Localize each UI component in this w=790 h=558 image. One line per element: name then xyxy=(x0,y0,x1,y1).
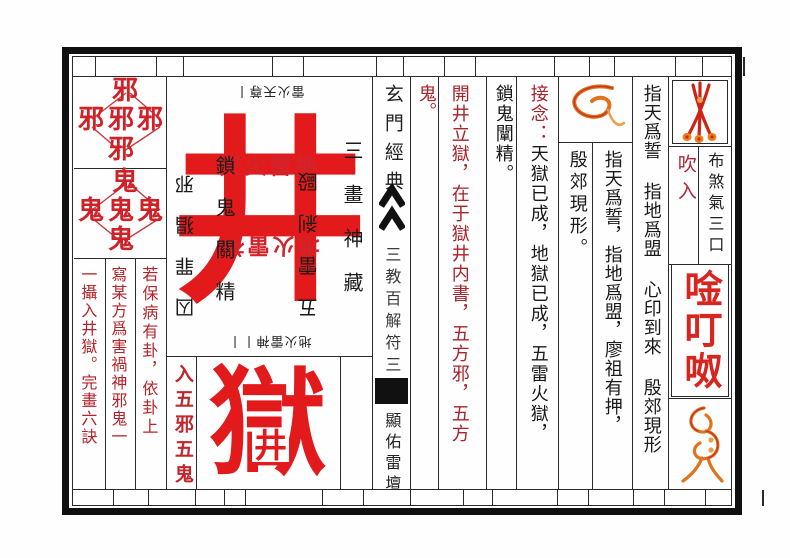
black-bar xyxy=(375,378,408,404)
grid-line xyxy=(558,77,559,489)
left-outer-inverted-col: 囚罪猖邪 xyxy=(176,153,198,317)
grid-line xyxy=(559,142,632,143)
prison-inset-well-char: 井 xyxy=(252,429,289,462)
left-instruction-col-2: 寫某方爲害禍神邪鬼一 xyxy=(108,266,126,486)
grid-line xyxy=(698,146,699,264)
grid-line xyxy=(340,356,341,489)
xie-char: 邪 xyxy=(108,107,134,133)
grid-line xyxy=(668,77,669,489)
double-chevron-up-icon xyxy=(379,184,405,234)
hundred-release-talisman-label: 三教百解符三 xyxy=(382,246,400,378)
gui-char: 鬼 xyxy=(108,227,134,253)
talisman-sheet: 邪 邪 邪 邪 邪 鬼 鬼 鬼 鬼 鬼 一攝入井獄。完畫六訣 寫某方爲害禍神邪鬼… xyxy=(0,0,790,558)
grid-line xyxy=(438,77,439,489)
lock-ghost-gate-col: 鎖鬼關精 xyxy=(212,155,235,323)
top-ruler-strip xyxy=(73,57,731,77)
grid-line xyxy=(372,77,373,489)
swirl-sigil-icon xyxy=(678,402,726,486)
grid-line xyxy=(669,146,732,147)
right-inner-inverted-col: 五雷剎毆 xyxy=(298,150,321,318)
gui-char: 鬼 xyxy=(108,198,134,224)
mantra-text: 唫叮呶 xyxy=(681,269,719,392)
three-strokes-col: 三畫神藏 xyxy=(340,140,363,316)
grid-line xyxy=(135,258,136,489)
needles-sigil-cell xyxy=(672,80,728,144)
crossed-strokes-sigil-icon xyxy=(673,81,727,143)
blow-in-label: 吹入 xyxy=(674,154,696,208)
grid-line xyxy=(592,142,593,489)
loop-sigil-icon xyxy=(562,80,628,138)
gui-char: 鬼 xyxy=(78,198,104,224)
enter-five-evils-label: 入五邪五鬼 xyxy=(171,364,193,489)
prison-char: 獄 xyxy=(197,358,339,488)
grid-line xyxy=(632,77,633,489)
xie-char: 邪 xyxy=(112,78,138,104)
gui-char: 鬼 xyxy=(137,198,163,224)
xie-char: 邪 xyxy=(78,107,104,133)
recite-body: 天獄已成，地獄已成，五雷火獄， xyxy=(528,144,549,444)
yin-jiao-col: 殷郊現形。 xyxy=(566,150,587,260)
grid-line xyxy=(410,77,411,489)
xie-charm-cell: 邪 邪 邪 邪 邪 xyxy=(74,77,166,168)
grid-line xyxy=(105,258,106,489)
overflow-col: 鬼。 xyxy=(415,84,436,120)
lock-ghost-col: 鎖鬼闡精。 xyxy=(492,84,513,184)
mantra-cell: 唫叮呶 xyxy=(671,264,729,397)
oath-long-col: 指天爲誓 指地爲盟 心印到來 殷郊現形 xyxy=(640,84,661,454)
grid-line xyxy=(486,77,487,489)
gui-charm-cell: 鬼 鬼 鬼 鬼 鬼 xyxy=(74,169,166,258)
seal-title: 玄門經典 xyxy=(381,84,403,200)
left-instruction-col-3: 若保病有卦，依卦上 xyxy=(139,266,157,486)
xie-char: 邪 xyxy=(137,107,163,133)
recite-col: 接念：天獄已成，地獄已成，五雷火獄， xyxy=(527,84,548,444)
recite-label: 接念： xyxy=(528,84,549,144)
gui-char: 鬼 xyxy=(112,169,138,195)
oath-short-col: 指天爲誓，指地爲盟，廖祖有押， xyxy=(601,150,622,435)
altar-name: 顯佑雷壇 xyxy=(382,412,400,496)
open-well-col: 開井立獄，在于獄井内書，五方邪，五方 xyxy=(448,84,469,444)
grid-line xyxy=(516,77,517,489)
bottom-ruler-strip xyxy=(73,489,731,506)
left-instruction-col-1: 一攝入井獄。完畫六訣 xyxy=(78,266,96,486)
bottom-sigil-text: 地火雷神丨丨 xyxy=(167,333,372,352)
xie-char: 邪 xyxy=(108,137,134,163)
grid-line xyxy=(74,258,166,259)
spread-breath-label: 布煞氣三口 xyxy=(705,152,723,257)
grid-line xyxy=(669,398,732,399)
